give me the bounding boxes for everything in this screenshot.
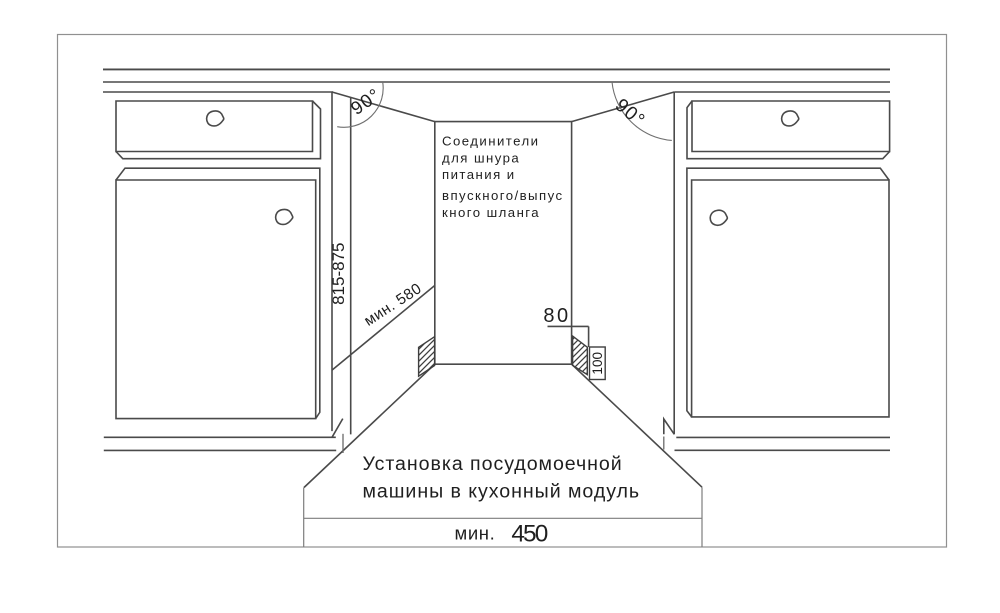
svg-text:для шнура: для шнура bbox=[442, 151, 520, 166]
svg-text:Установка посудомоечной: Установка посудомоечной bbox=[363, 453, 623, 475]
svg-text:100: 100 bbox=[590, 352, 605, 375]
svg-text:80: 80 bbox=[543, 305, 570, 327]
svg-text:питания и: питания и bbox=[442, 167, 516, 182]
svg-text:Соединители: Соединители bbox=[442, 134, 539, 149]
svg-text:кного шланга: кного шланга bbox=[442, 205, 540, 220]
svg-text:машины в кухонный модуль: машины в кухонный модуль bbox=[363, 480, 641, 502]
svg-text:815-875: 815-875 bbox=[329, 243, 348, 305]
svg-text:впускного/выпус: впускного/выпус bbox=[442, 188, 564, 203]
